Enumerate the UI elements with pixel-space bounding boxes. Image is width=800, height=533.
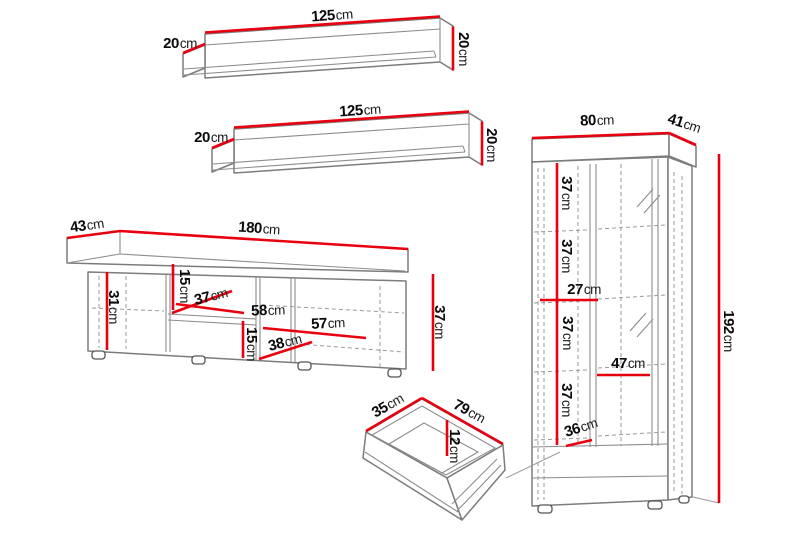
tv-foot <box>92 351 105 359</box>
dim-shelf1-depth: 20cm <box>163 36 197 52</box>
dim-tv-right-niche: 57cm <box>311 315 345 333</box>
cabinet-side <box>668 157 692 500</box>
dim-tv-width: 180cm <box>238 220 281 239</box>
tv-foot <box>388 369 401 377</box>
dim-shelf2-height: 20cm <box>483 128 499 162</box>
dim-cab-width: 80cm <box>580 112 614 129</box>
tv-foot <box>298 362 311 370</box>
dim-tv-lower-niche: 15cm <box>243 327 259 361</box>
dim-cab-section3: 37cm <box>559 316 575 350</box>
dim-shelf2-width: 125cm <box>339 102 382 121</box>
furniture-dimension-diagram: 125cm 20cm 20cm 125cm 20cm 20cm 43cm 180… <box>0 0 800 533</box>
dim-shelf2-depth: 20cm <box>194 130 228 146</box>
tv-foot <box>192 356 205 364</box>
dim-cab-height: 192cm <box>720 310 736 352</box>
dim-cab-shelf-gap: 27cm <box>567 282 601 298</box>
dim-tv-height: 37cm <box>431 305 447 339</box>
dim-cab-section4: 37cm <box>558 383 574 417</box>
dim-cab-section2: 37cm <box>558 239 574 273</box>
cabinet-foot <box>648 501 662 509</box>
diagram-linework <box>0 0 800 533</box>
dim-cab-shelf-width: 47cm <box>611 356 645 372</box>
dim-tv-left-height: 31cm <box>105 290 121 324</box>
dim-drawer-height: 12cm <box>446 429 462 463</box>
dim-shelf1-height: 20cm <box>455 32 471 66</box>
wall-shelf-1 <box>183 17 453 79</box>
dim-cab-section1: 37cm <box>558 176 574 210</box>
cabinet-foot <box>679 496 689 503</box>
dim-tv-niche-width: 58cm <box>251 302 285 319</box>
dim-tv-upper-niche: 15cm <box>176 269 192 303</box>
wall-shelf-2 <box>212 112 482 174</box>
cabinet-foot <box>538 505 552 513</box>
dim-shelf1-width: 125cm <box>311 7 354 26</box>
